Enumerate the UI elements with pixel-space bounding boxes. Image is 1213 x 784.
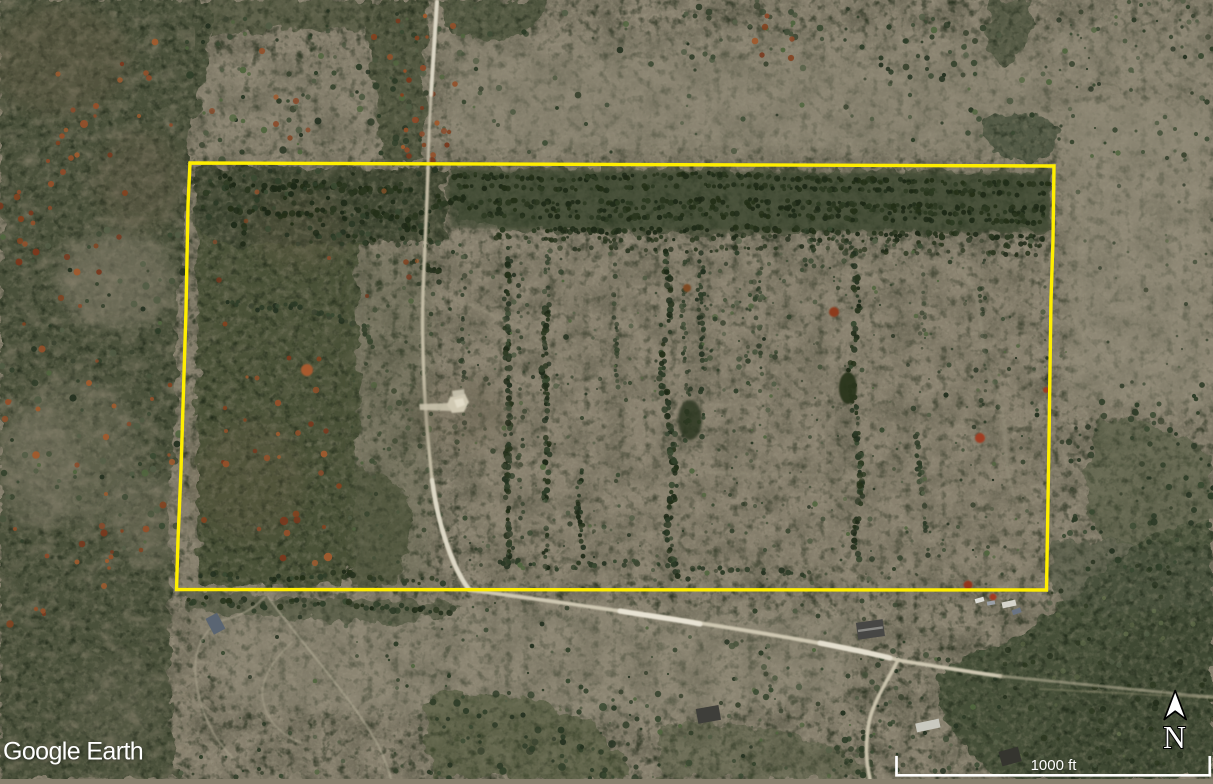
svg-text:Google Earth: Google Earth <box>3 738 143 766</box>
svg-text:1000 ft: 1000 ft <box>1031 757 1078 774</box>
svg-text:N: N <box>1163 720 1186 755</box>
